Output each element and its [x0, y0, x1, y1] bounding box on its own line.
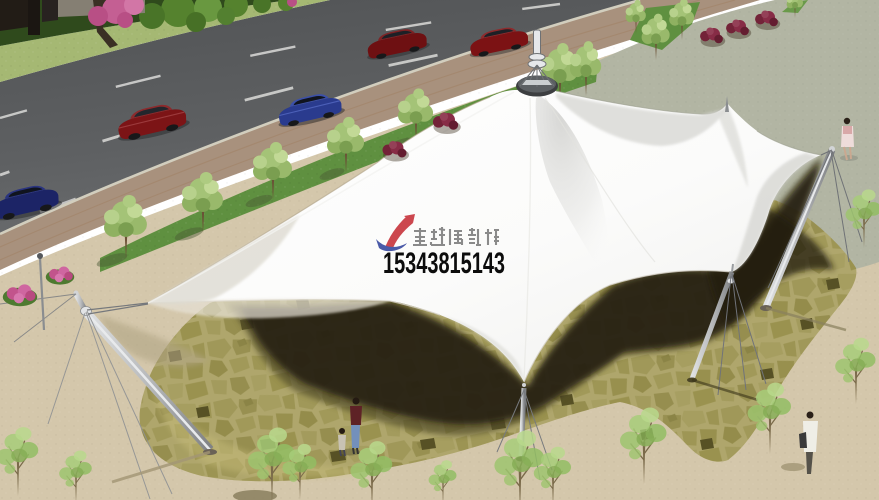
- svg-text:15343815143: 15343815143: [383, 247, 505, 280]
